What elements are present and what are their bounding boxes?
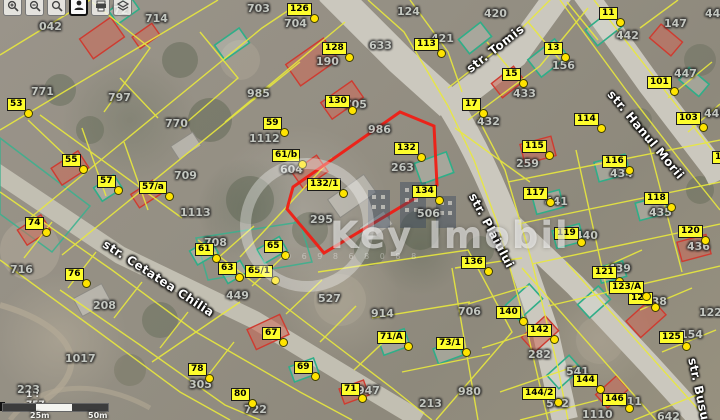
parcel-point-icon[interactable] [271, 276, 280, 285]
parcel-marker-label[interactable]: 115 [522, 140, 547, 153]
parcel-point-icon[interactable] [462, 348, 471, 357]
parcel-marker-label[interactable]: 125 [659, 331, 684, 344]
terrain-number: 527 [318, 293, 341, 304]
terrain-number: 208 [93, 300, 116, 311]
terrain-number: 797 [108, 92, 131, 103]
terrain-number: 442 [616, 30, 639, 41]
parcel-point-icon[interactable] [82, 279, 91, 288]
parcel-point-icon[interactable] [345, 53, 354, 62]
parcel-point-icon[interactable] [24, 109, 33, 118]
parcel-marker-label[interactable]: 118 [644, 192, 669, 205]
parcel-marker-label[interactable]: 136 [461, 256, 486, 269]
zoom-in-button[interactable] [3, 0, 22, 16]
terrain-number: 914 [371, 308, 394, 319]
parcel-point-icon[interactable] [625, 404, 634, 413]
map-canvas[interactable]: 0427147037047977717709851112190633705124… [0, 0, 720, 420]
parcel-point-icon[interactable] [699, 123, 708, 132]
parcel-marker-label[interactable]: 140 [496, 306, 521, 319]
terrain-number: 714 [145, 13, 168, 24]
parcel-marker-label[interactable]: 146 [602, 393, 627, 406]
parcel-marker-label[interactable]: 73/1 [436, 337, 464, 350]
parcel-marker-label[interactable]: 69 [294, 361, 313, 374]
terrain-number: 709 [174, 170, 197, 181]
terrain-number: 295 [310, 214, 333, 225]
parcel-point-icon[interactable] [435, 196, 444, 205]
print-icon [95, 0, 107, 12]
parcel-marker-label[interactable]: 76 [65, 268, 84, 281]
layers-icon [117, 0, 129, 12]
terrain-number: 449 [226, 290, 249, 301]
parcel-marker-label[interactable]: 101 [647, 76, 672, 89]
layers-button[interactable] [113, 0, 132, 16]
parcel-marker-label[interactable]: 17 [462, 98, 481, 111]
parcel-point-icon[interactable] [358, 394, 367, 403]
parcel-point-icon[interactable] [550, 335, 559, 344]
parcel-point-icon[interactable] [417, 153, 426, 162]
parcel-marker-label[interactable]: 57 [97, 175, 116, 188]
terrain-number: 190 [316, 56, 339, 67]
parcel-marker-label[interactable]: 71 [341, 383, 360, 396]
parcel-marker-label[interactable]: 126 [287, 3, 312, 16]
parcel-marker-label[interactable]: 123/A [609, 281, 644, 294]
terrain-number: 432 [477, 116, 500, 127]
parcel-marker-label[interactable]: 120 [678, 225, 703, 238]
parcel-marker-label[interactable]: 144 [573, 374, 598, 387]
parcel-point-icon[interactable] [616, 18, 625, 27]
terrain-number: 642 [657, 411, 680, 420]
parcel-point-icon[interactable] [701, 236, 710, 245]
parcel-marker-label[interactable]: 67 [262, 327, 281, 340]
parcel-point-icon[interactable] [484, 267, 493, 276]
parcel-marker-label[interactable]: 65/1 [245, 265, 273, 278]
terrain-number: 706 [458, 306, 481, 317]
parcel-point-icon[interactable] [235, 273, 244, 282]
terrain-number: 282 [528, 349, 551, 360]
parcel-point-icon[interactable] [597, 124, 606, 133]
print-button[interactable] [91, 0, 110, 16]
parcel-point-icon[interactable] [682, 342, 691, 351]
parcel-marker-label[interactable]: 13 [544, 42, 563, 55]
terrain-number: 986 [368, 124, 391, 135]
parcel-marker-label[interactable]: 78 [188, 363, 207, 376]
terrain-number: 042 [39, 21, 62, 32]
parcel-marker-label[interactable]: 132 [394, 142, 419, 155]
parcel-marker-label[interactable]: 65 [264, 240, 283, 253]
map-graphics [0, 0, 720, 420]
parcel-marker-label[interactable]: 11 [599, 7, 618, 20]
parcel-point-icon[interactable] [79, 165, 88, 174]
parcel-marker-label[interactable]: 128 [322, 42, 347, 55]
terrain-number: 147 [664, 18, 687, 29]
terrain-number: 259 [516, 158, 539, 169]
identify-person-icon [73, 0, 85, 11]
parcel-point-icon[interactable] [561, 53, 570, 62]
terrain-number: 704 [284, 18, 307, 29]
terrain-number: 506 [417, 208, 440, 219]
parcel-point-icon[interactable] [479, 109, 488, 118]
parcel-point-icon[interactable] [625, 166, 634, 175]
parcel-marker-label[interactable]: 117 [523, 187, 548, 200]
terrain-number: 446 [704, 108, 720, 119]
parcel-point-icon[interactable] [279, 338, 288, 347]
parcel-marker-label[interactable]: 71/A [377, 331, 406, 344]
parcel-point-icon[interactable] [546, 198, 555, 207]
parcel-marker-label[interactable]: 61/b [272, 149, 300, 162]
terrain-number: 263 [391, 162, 414, 173]
terrain-number: 122/6 [699, 307, 720, 318]
terrain-number: 703 [247, 3, 270, 14]
parcel-point-icon[interactable] [114, 186, 123, 195]
parcel-marker-label[interactable]: 132/1 [307, 178, 341, 191]
parcel-marker-label[interactable]: 74 [25, 217, 44, 230]
parcel-marker-label[interactable]: 114 [574, 113, 599, 126]
parcel-marker-label[interactable]: 55 [62, 154, 81, 167]
terrain-number: 443 [705, 8, 720, 19]
parcel-point-icon[interactable] [667, 203, 676, 212]
parcel-marker-label[interactable]: 61 [195, 243, 214, 256]
parcel-point-icon[interactable] [670, 87, 679, 96]
parcel-point-icon[interactable] [248, 399, 257, 408]
parcel-point-icon[interactable] [651, 303, 660, 312]
parcel-marker-label[interactable]: 130 [325, 95, 350, 108]
parcel-marker-label[interactable]: 103 [676, 112, 701, 125]
zoom-extent-button[interactable] [47, 0, 66, 16]
parcel-marker-label[interactable]: 59 [263, 117, 282, 130]
terrain-number: 980 [458, 386, 481, 397]
parcel-marker-label[interactable]: 121 [592, 266, 617, 279]
identify-person-button[interactable] [69, 0, 88, 16]
parcel-point-icon[interactable] [642, 292, 651, 301]
parcel-point-icon[interactable] [281, 251, 290, 260]
parcel-point-icon[interactable] [404, 342, 413, 351]
terrain-number: 633 [369, 40, 392, 51]
parcel-point-icon[interactable] [205, 374, 214, 383]
terrain-number: 985 [247, 88, 270, 99]
parcel-marker-label[interactable]: 10 [712, 151, 720, 164]
parcel-point-icon[interactable] [519, 79, 528, 88]
parcel-point-icon[interactable] [310, 14, 319, 23]
parcel-marker-label[interactable]: 57/a [139, 181, 167, 194]
terrain-number: 716 [10, 264, 33, 275]
terrain-number: 420 [484, 8, 507, 19]
terrain-number: 447 [674, 68, 697, 79]
terrain-number: 213 [419, 398, 442, 409]
scale-end-label: 50m [88, 411, 107, 420]
parcel-point-icon[interactable] [165, 192, 174, 201]
terrain-number: 1110 [582, 409, 613, 420]
parcel-marker-label[interactable]: 113 [414, 38, 439, 51]
parcel-point-icon[interactable] [577, 238, 586, 247]
parcel-marker-label[interactable]: 80 [231, 388, 250, 401]
parcel-marker-label[interactable]: 116 [602, 155, 627, 168]
terrain-number: 771 [31, 86, 54, 97]
map-toolbar [3, 0, 132, 16]
parcel-point-icon[interactable] [280, 128, 289, 137]
terrain-number: 1017 [65, 353, 96, 364]
zoom-out-icon [29, 0, 41, 12]
terrain-number: 1112 [249, 133, 280, 144]
parcel-point-icon[interactable] [437, 49, 446, 58]
parcel-point-icon[interactable] [545, 151, 554, 160]
zoom-in-icon [7, 0, 19, 12]
parcel-point-icon[interactable] [311, 372, 320, 381]
zoom-out-button[interactable] [25, 0, 44, 16]
terrain-number: 433 [513, 88, 536, 99]
zoom-extent-icon [51, 0, 63, 12]
parcel-marker-label[interactable]: 134 [412, 185, 437, 198]
parcel-marker-label[interactable]: 53 [7, 98, 26, 111]
parcel-marker-label[interactable]: 15 [502, 68, 521, 81]
terrain-number: 770 [165, 118, 188, 129]
terrain-number: 1113 [180, 207, 211, 218]
parcel-marker-label[interactable]: 144/2 [522, 387, 556, 400]
parcel-marker-label[interactable]: 119 [554, 227, 579, 240]
scale-mid-label: 25m [30, 411, 49, 420]
parcel-point-icon[interactable] [42, 228, 51, 237]
parcel-point-icon[interactable] [348, 106, 357, 115]
parcel-marker-label[interactable]: 63 [218, 262, 237, 275]
terrain-number: 124 [397, 6, 420, 17]
parcel-marker-label[interactable]: 142 [527, 324, 552, 337]
